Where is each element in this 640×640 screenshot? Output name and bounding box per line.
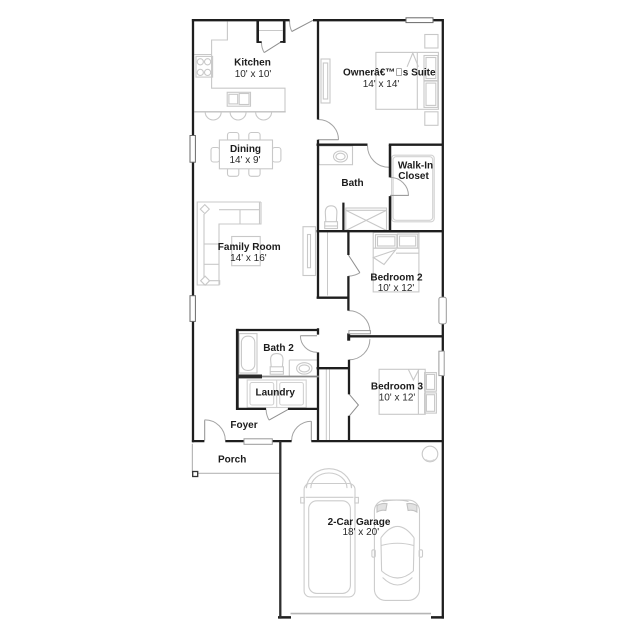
- svg-text:Ownerâ€™s Suite: Ownerâ€™s Suite: [343, 68, 436, 79]
- svg-text:14' x 14': 14' x 14': [363, 79, 400, 90]
- svg-text:10' x 10': 10' x 10': [235, 69, 272, 80]
- svg-text:14' x 16': 14' x 16': [230, 253, 267, 264]
- svg-text:Kitchen: Kitchen: [234, 58, 271, 69]
- svg-text:14' x 9': 14' x 9': [229, 155, 260, 166]
- svg-text:Laundry: Laundry: [255, 388, 295, 399]
- svg-text:Bedroom 3: Bedroom 3: [371, 382, 424, 393]
- svg-text:Foyer: Foyer: [230, 420, 257, 431]
- svg-text:Bath 2: Bath 2: [263, 343, 294, 354]
- svg-text:10' x 12': 10' x 12': [379, 393, 416, 404]
- svg-text:10' x 12': 10' x 12': [378, 283, 415, 294]
- svg-text:Family Room: Family Room: [218, 242, 281, 253]
- svg-text:Dining: Dining: [230, 144, 261, 155]
- svg-text:Porch: Porch: [218, 454, 246, 465]
- svg-text:Closet: Closet: [398, 171, 429, 182]
- svg-text:Bath: Bath: [341, 178, 363, 189]
- svg-text:18' x 20': 18' x 20': [342, 527, 379, 538]
- svg-text:Walk-In: Walk-In: [398, 160, 433, 171]
